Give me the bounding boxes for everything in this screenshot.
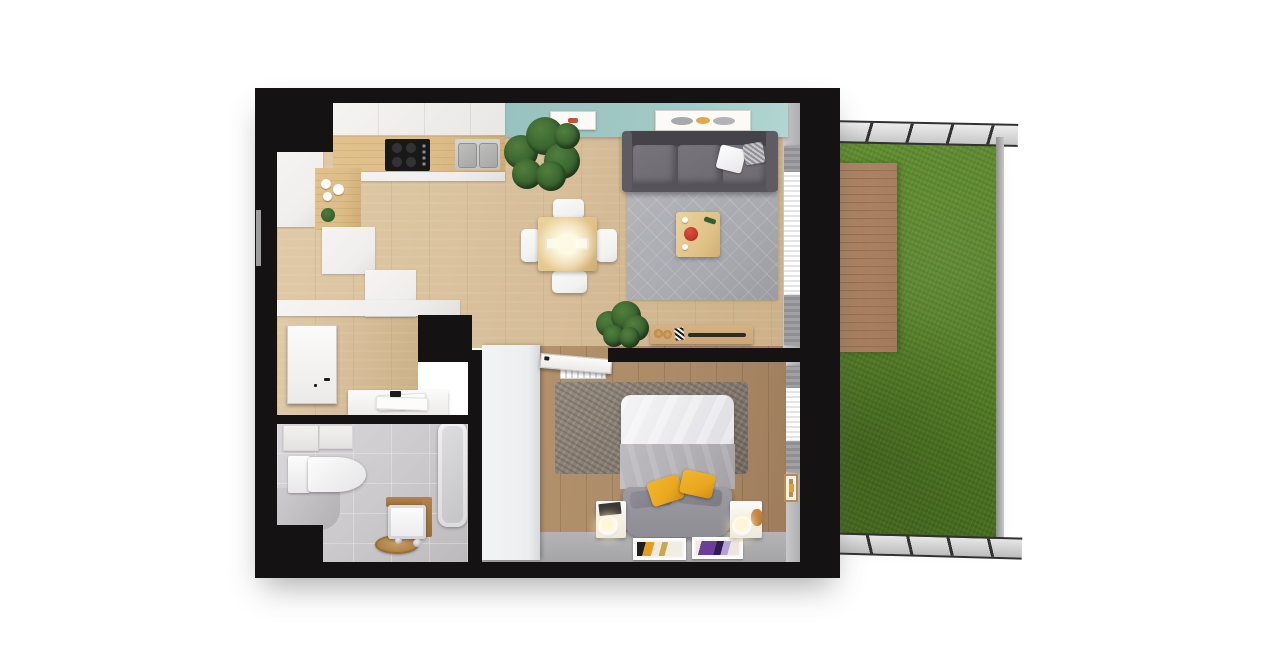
- sofa-cushion: [633, 145, 676, 185]
- papers: [376, 396, 428, 411]
- curtain-gray-bottom: [784, 295, 800, 345]
- floorplan-render: [0, 0, 1280, 667]
- kitchen-upper-cabinets: [333, 103, 505, 135]
- wall-bathroom-top: [277, 415, 468, 424]
- door-handle: [544, 356, 549, 360]
- bathroom-shelf: [283, 425, 319, 451]
- small-kitchen-plant: [321, 208, 335, 222]
- curtain-gray-top: [786, 366, 800, 388]
- bedroom-window-curtains: [786, 366, 800, 472]
- sofa-arm-left: [622, 131, 632, 192]
- placemat-right: [574, 237, 589, 250]
- wall-hall-stub: [418, 315, 472, 362]
- sofa-pillow-gray: [742, 141, 765, 165]
- soundbar: [688, 333, 746, 337]
- wood-slice-decor: [663, 330, 672, 339]
- dining-chair-bottom: [552, 271, 587, 293]
- frame-art-feather-right: [713, 117, 735, 125]
- nightstand-art-card: [598, 502, 621, 516]
- living-room-window-curtains: [784, 146, 800, 345]
- coffee-table: [676, 212, 720, 257]
- red-bowl: [684, 227, 698, 241]
- wall-notch-bottom-left: [277, 525, 323, 578]
- sofa-cushion: [678, 145, 721, 185]
- wardrobe: [482, 345, 540, 560]
- sink-bowl-left: [458, 143, 477, 168]
- mug: [333, 184, 344, 195]
- bathtub: [438, 422, 467, 527]
- art-orange-black: [637, 542, 682, 556]
- kitchen-sink: [455, 139, 500, 170]
- door-lock: [314, 384, 317, 387]
- dining-chair-right: [596, 229, 617, 262]
- curtain-white-sheer: [784, 172, 800, 295]
- washbasin: [388, 505, 426, 539]
- curtain-gray-top: [784, 146, 800, 172]
- kitchen-peninsula-cabinet: [277, 300, 460, 316]
- sphere-lamp-left: [598, 516, 619, 537]
- cup: [682, 244, 688, 250]
- floor-art-print-purple: [692, 537, 743, 559]
- frame-art-yellow: [696, 117, 710, 124]
- wall-bottom: [255, 562, 840, 578]
- leaning-wall-frame: [784, 474, 798, 502]
- striped-card-decor: [674, 327, 685, 340]
- double-bed: [620, 395, 735, 542]
- tv-sideboard: [650, 325, 753, 344]
- door-handle: [324, 378, 330, 381]
- sofa: [622, 131, 778, 192]
- floor-art-print-orange: [633, 538, 686, 560]
- dining-table: [538, 217, 597, 271]
- placemat-left: [545, 237, 560, 250]
- orange-pouch: [751, 509, 763, 526]
- apartment: [255, 88, 840, 578]
- dining-chair-top: [553, 199, 584, 219]
- faucet: [395, 537, 402, 544]
- potted-plant-large: [500, 115, 585, 195]
- entry-door: [287, 325, 337, 404]
- curtain-gray-bottom: [786, 441, 800, 472]
- wood-slice-decor: [654, 329, 663, 338]
- fence-bottom: [833, 532, 1023, 559]
- phone-on-console: [390, 391, 401, 397]
- bathroom-bench: [277, 488, 340, 530]
- curtain-white-sheer: [786, 388, 800, 441]
- cooktop: [385, 139, 430, 171]
- toilet-cistern: [288, 456, 310, 493]
- faucet: [413, 539, 422, 547]
- wooden-deck: [833, 163, 897, 352]
- building-entry-door-in-wall: [256, 210, 261, 266]
- wall-frame-wide: [655, 110, 751, 131]
- hallway-console-table: [348, 390, 448, 417]
- mug: [321, 179, 331, 189]
- sphere-lamp-right: [732, 516, 753, 537]
- sink-bowl-right: [479, 143, 498, 168]
- art-purple: [696, 541, 739, 555]
- bathtub-interior: [442, 426, 463, 523]
- wall-left: [255, 88, 277, 578]
- mug: [323, 192, 332, 201]
- kitchen-left-counter: [315, 168, 361, 230]
- fence-right: [996, 137, 1004, 539]
- cup: [682, 217, 688, 223]
- sofa-arm-right: [766, 131, 778, 192]
- bathroom-shelf: [319, 425, 353, 449]
- wall-living-bedroom: [608, 348, 803, 362]
- potted-plant-sideboard: [596, 301, 650, 349]
- frame-art-feather-left: [671, 117, 693, 125]
- wall-notch-top-left: [255, 88, 333, 152]
- wall-right: [800, 88, 840, 578]
- wall-top: [255, 88, 840, 103]
- fence-top: [833, 120, 1018, 147]
- toilet: [308, 457, 366, 492]
- table-decor-green: [704, 216, 717, 224]
- wall-bath-bedroom: [468, 350, 482, 578]
- kitchen-left-cabinet-2: [322, 227, 375, 274]
- bed-duvet: [621, 395, 734, 446]
- frame-art-dot: [789, 484, 794, 492]
